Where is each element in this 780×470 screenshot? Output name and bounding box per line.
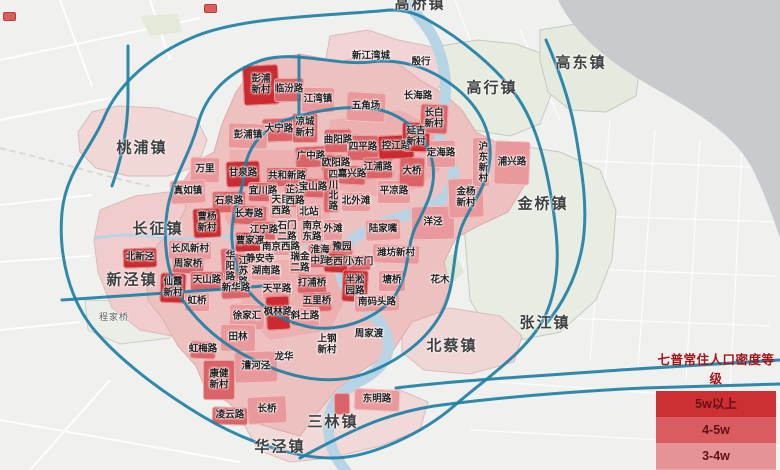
legend-title: 七普常住人口密度等级 [656,349,776,387]
legend-row-5w-plus: 5w以上 [656,391,776,417]
outer-ring-road [61,10,557,458]
legend-row-3-4w: 3-4w [656,443,776,469]
inner-ring-road [232,107,434,328]
east-expressway [546,40,585,324]
map-canvas: 彭浦 新村临汾路江湾镇五角场大宁路凉城 新村彭浦镇广中路曲阳路四平路欧阳路甘泉路… [0,0,780,470]
density-legend: 七普常住人口密度等级 5w以上 4-5w 3-4w 2-3w [656,349,776,470]
legend-row-4-5w: 4-5w [656,417,776,443]
middle-ring-road [165,57,490,380]
hujia-expressway [112,46,128,186]
yanan-elevated-road [62,286,262,300]
